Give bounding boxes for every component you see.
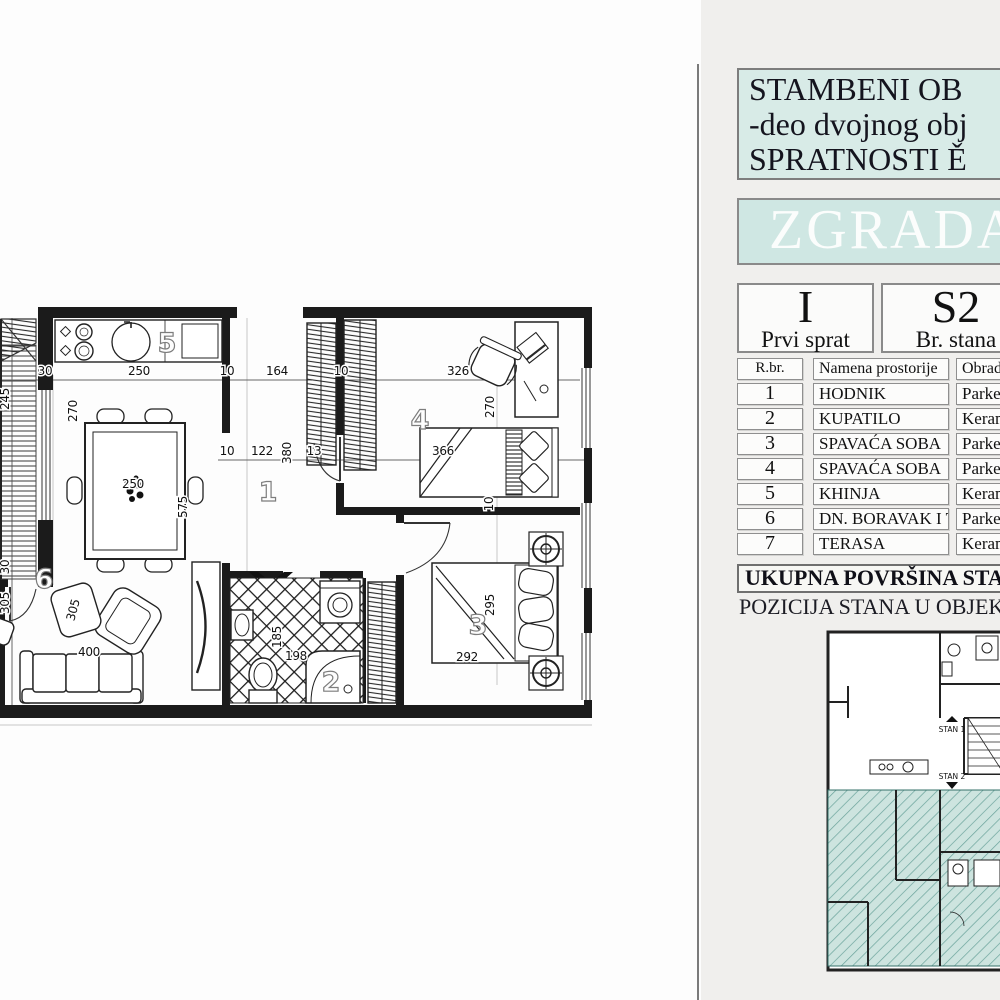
room-table: R.br. Namena prostorije Obrad 1HODNIKPar… (737, 358, 1000, 558)
dimension-label: 270 (483, 396, 497, 418)
room-number-label: 3 (469, 610, 488, 641)
mini-plan-unit-label: STAN 2 (939, 772, 966, 781)
mini-position-plan: STAN 1STAN 2 (800, 622, 1000, 1000)
total-area-box: UKUPNA POVRŠINA STAN (737, 564, 1000, 593)
room-number-cell: 7 (737, 533, 803, 555)
dimension-label: 292 (456, 650, 478, 664)
dimension-label: 400 (78, 645, 100, 659)
dimension-label: 198 (285, 649, 307, 663)
floor-box: I Prvi sprat (737, 283, 874, 353)
dimension-label: 10 (482, 497, 496, 512)
header-obrada: Obrad (956, 358, 1000, 380)
dimension-label: 326 (447, 364, 469, 378)
desk (515, 322, 558, 417)
terrace (1, 319, 36, 579)
title-line-2: -deo dvojnog obj (749, 107, 1000, 142)
room-number-label: 4 (411, 405, 430, 436)
dimension-label: 270 (66, 400, 80, 422)
title-line-3: SPRATNOSTI Ě (749, 142, 1000, 177)
kitchen (55, 320, 222, 362)
dimension-label: 30 (38, 364, 53, 378)
dimension-label: 10 (334, 364, 349, 378)
room-finish-cell: Keram (956, 408, 1000, 430)
dimension-label: 305 (0, 592, 12, 614)
dimension-label: 10 (220, 444, 235, 458)
floor-caption: Prvi sprat (739, 329, 872, 351)
room-number-cell: 4 (737, 458, 803, 480)
dimension-label: 250 (128, 364, 150, 378)
dimension-label: 575 (176, 496, 190, 518)
room-number-cell: 3 (737, 433, 803, 455)
room-name-cell: SPAVAĆA SOBA (813, 458, 949, 480)
room-name-cell: DN. BORAVAK I TRP. (813, 508, 949, 530)
tv-unit (192, 562, 220, 690)
room-number-label: 5 (158, 328, 177, 359)
room-name-cell: HODNIK (813, 383, 949, 405)
toilet (249, 658, 277, 703)
dimension-label: 30 (0, 560, 12, 575)
room-finish-cell: Parket (956, 458, 1000, 480)
room-name-cell: SPAVAĆA SOBA (813, 433, 949, 455)
room-finish-cell: Keram (956, 483, 1000, 505)
dimension-label: 10 (220, 364, 235, 378)
bathroom (230, 578, 363, 703)
room-finish-cell: Parket (956, 508, 1000, 530)
room-number-cell: 5 (737, 483, 803, 505)
room-finish-cell: Keram (956, 533, 1000, 555)
bath-sink (231, 610, 253, 640)
room-number-cell: 1 (737, 383, 803, 405)
unit-box: S2 Br. stana (881, 283, 1000, 353)
dimension-label: 13 (307, 444, 322, 458)
dimension-label: 250 (122, 477, 144, 491)
total-area-label: UKUPNA POVRŠINA STAN (745, 565, 1000, 590)
washing-machine (320, 581, 360, 623)
room-name-cell: KUPATILO (813, 408, 949, 430)
unit-symbol: S2 (883, 285, 1000, 329)
bed-room4 (420, 428, 558, 497)
dimension-label: 245 (0, 388, 12, 410)
dimension-label: 366 (432, 444, 454, 458)
floor-symbol: I (739, 285, 872, 329)
room-number-label: 1 (259, 477, 278, 508)
room-name-cell: KHINJA (813, 483, 949, 505)
building-label: ZGRADA (769, 199, 1000, 261)
room-number-label: 2 (322, 667, 341, 698)
mini-plan-unit-label: STAN 1 (939, 725, 966, 734)
dimension-label: 164 (266, 364, 288, 378)
floor-plan-drawing: 3025010164103262452702702501012238013366… (0, 285, 592, 740)
room-finish-cell: Parket (956, 433, 1000, 455)
room-name-cell: TERASA (813, 533, 949, 555)
dimension-label: 122 (251, 444, 273, 458)
room-number-cell: 2 (737, 408, 803, 430)
position-label: POZICIJA STANA U OBJEKT (739, 594, 1000, 620)
header-namena: Namena prostorije (813, 358, 949, 380)
dimension-label: 185 (270, 626, 284, 648)
room-number-label: 6 (35, 564, 54, 595)
room-number-cell: 6 (737, 508, 803, 530)
title-box: STAMBENI OB -deo dvojnog obj SPRATNOSTI … (737, 68, 1000, 180)
panel-divider (697, 64, 699, 1000)
dimension-label: 380 (280, 442, 294, 464)
title-line-1: STAMBENI OB (749, 72, 1000, 107)
header-rbr: R.br. (737, 358, 803, 380)
building-label-box: ZGRADA (737, 198, 1000, 265)
unit-caption: Br. stana (883, 329, 1000, 351)
room-finish-cell: Parket (956, 383, 1000, 405)
